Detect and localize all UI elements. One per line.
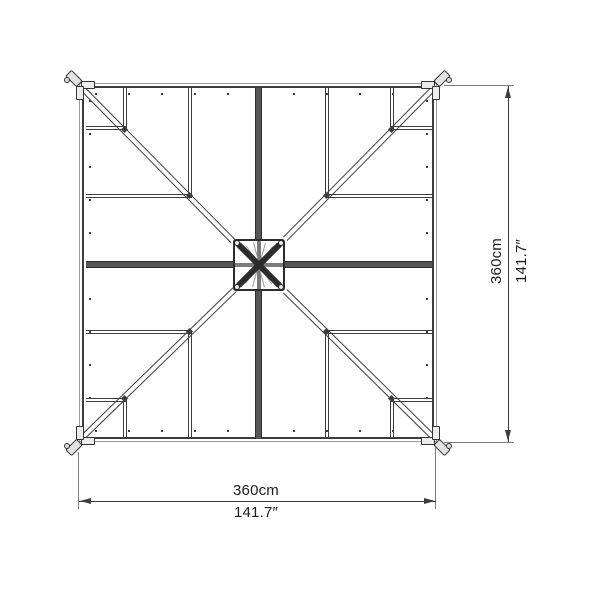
center-beam-horizontal-right	[285, 261, 432, 268]
technical-drawing: 360cm 141.7″ 360cm 141.7″	[0, 0, 600, 600]
center-hub	[233, 239, 285, 291]
arrowhead-left-icon	[80, 498, 91, 504]
arrowhead-right-icon	[424, 498, 435, 504]
hub-pin	[278, 240, 284, 246]
bracket-arm	[432, 426, 440, 440]
center-beam-vertical-bottom	[255, 291, 262, 439]
arrowhead-down-icon	[505, 430, 511, 441]
purlin	[326, 330, 432, 334]
purlin	[390, 398, 394, 439]
extension-line	[435, 447, 436, 509]
purlin	[390, 398, 432, 402]
purlin	[326, 194, 432, 198]
height-label-metric: 360cm	[488, 221, 506, 301]
purlin	[325, 331, 329, 439]
bracket-arm	[76, 86, 84, 100]
extension-line	[444, 85, 514, 86]
purlin	[123, 88, 127, 130]
height-label-imperial: 141.7″	[513, 221, 531, 301]
bracket-arm	[76, 426, 84, 440]
bracket-pin	[64, 77, 70, 83]
center-beam-horizontal-left	[86, 261, 233, 268]
purlin	[390, 126, 432, 130]
width-label-imperial: 141.7″	[196, 504, 316, 521]
bracket-pin	[64, 443, 70, 449]
purlin	[123, 398, 127, 439]
extension-line	[444, 442, 514, 443]
purlin	[390, 88, 394, 130]
dimension-line-horizontal	[79, 501, 436, 502]
purlin	[188, 331, 192, 439]
hub-pin	[234, 240, 240, 246]
arrowhead-up-icon	[505, 87, 511, 98]
hub-pin	[234, 284, 240, 290]
hub-pin	[278, 284, 284, 290]
purlin	[86, 330, 192, 334]
bracket-pin	[446, 77, 452, 83]
dimension-line-vertical	[508, 86, 509, 442]
bracket-arm	[432, 86, 440, 100]
width-label-metric: 360cm	[196, 482, 316, 499]
purlin	[86, 194, 192, 198]
purlin	[325, 88, 329, 197]
bracket-pin	[446, 443, 452, 449]
purlin	[188, 88, 192, 197]
center-beam-vertical-top	[255, 88, 262, 239]
